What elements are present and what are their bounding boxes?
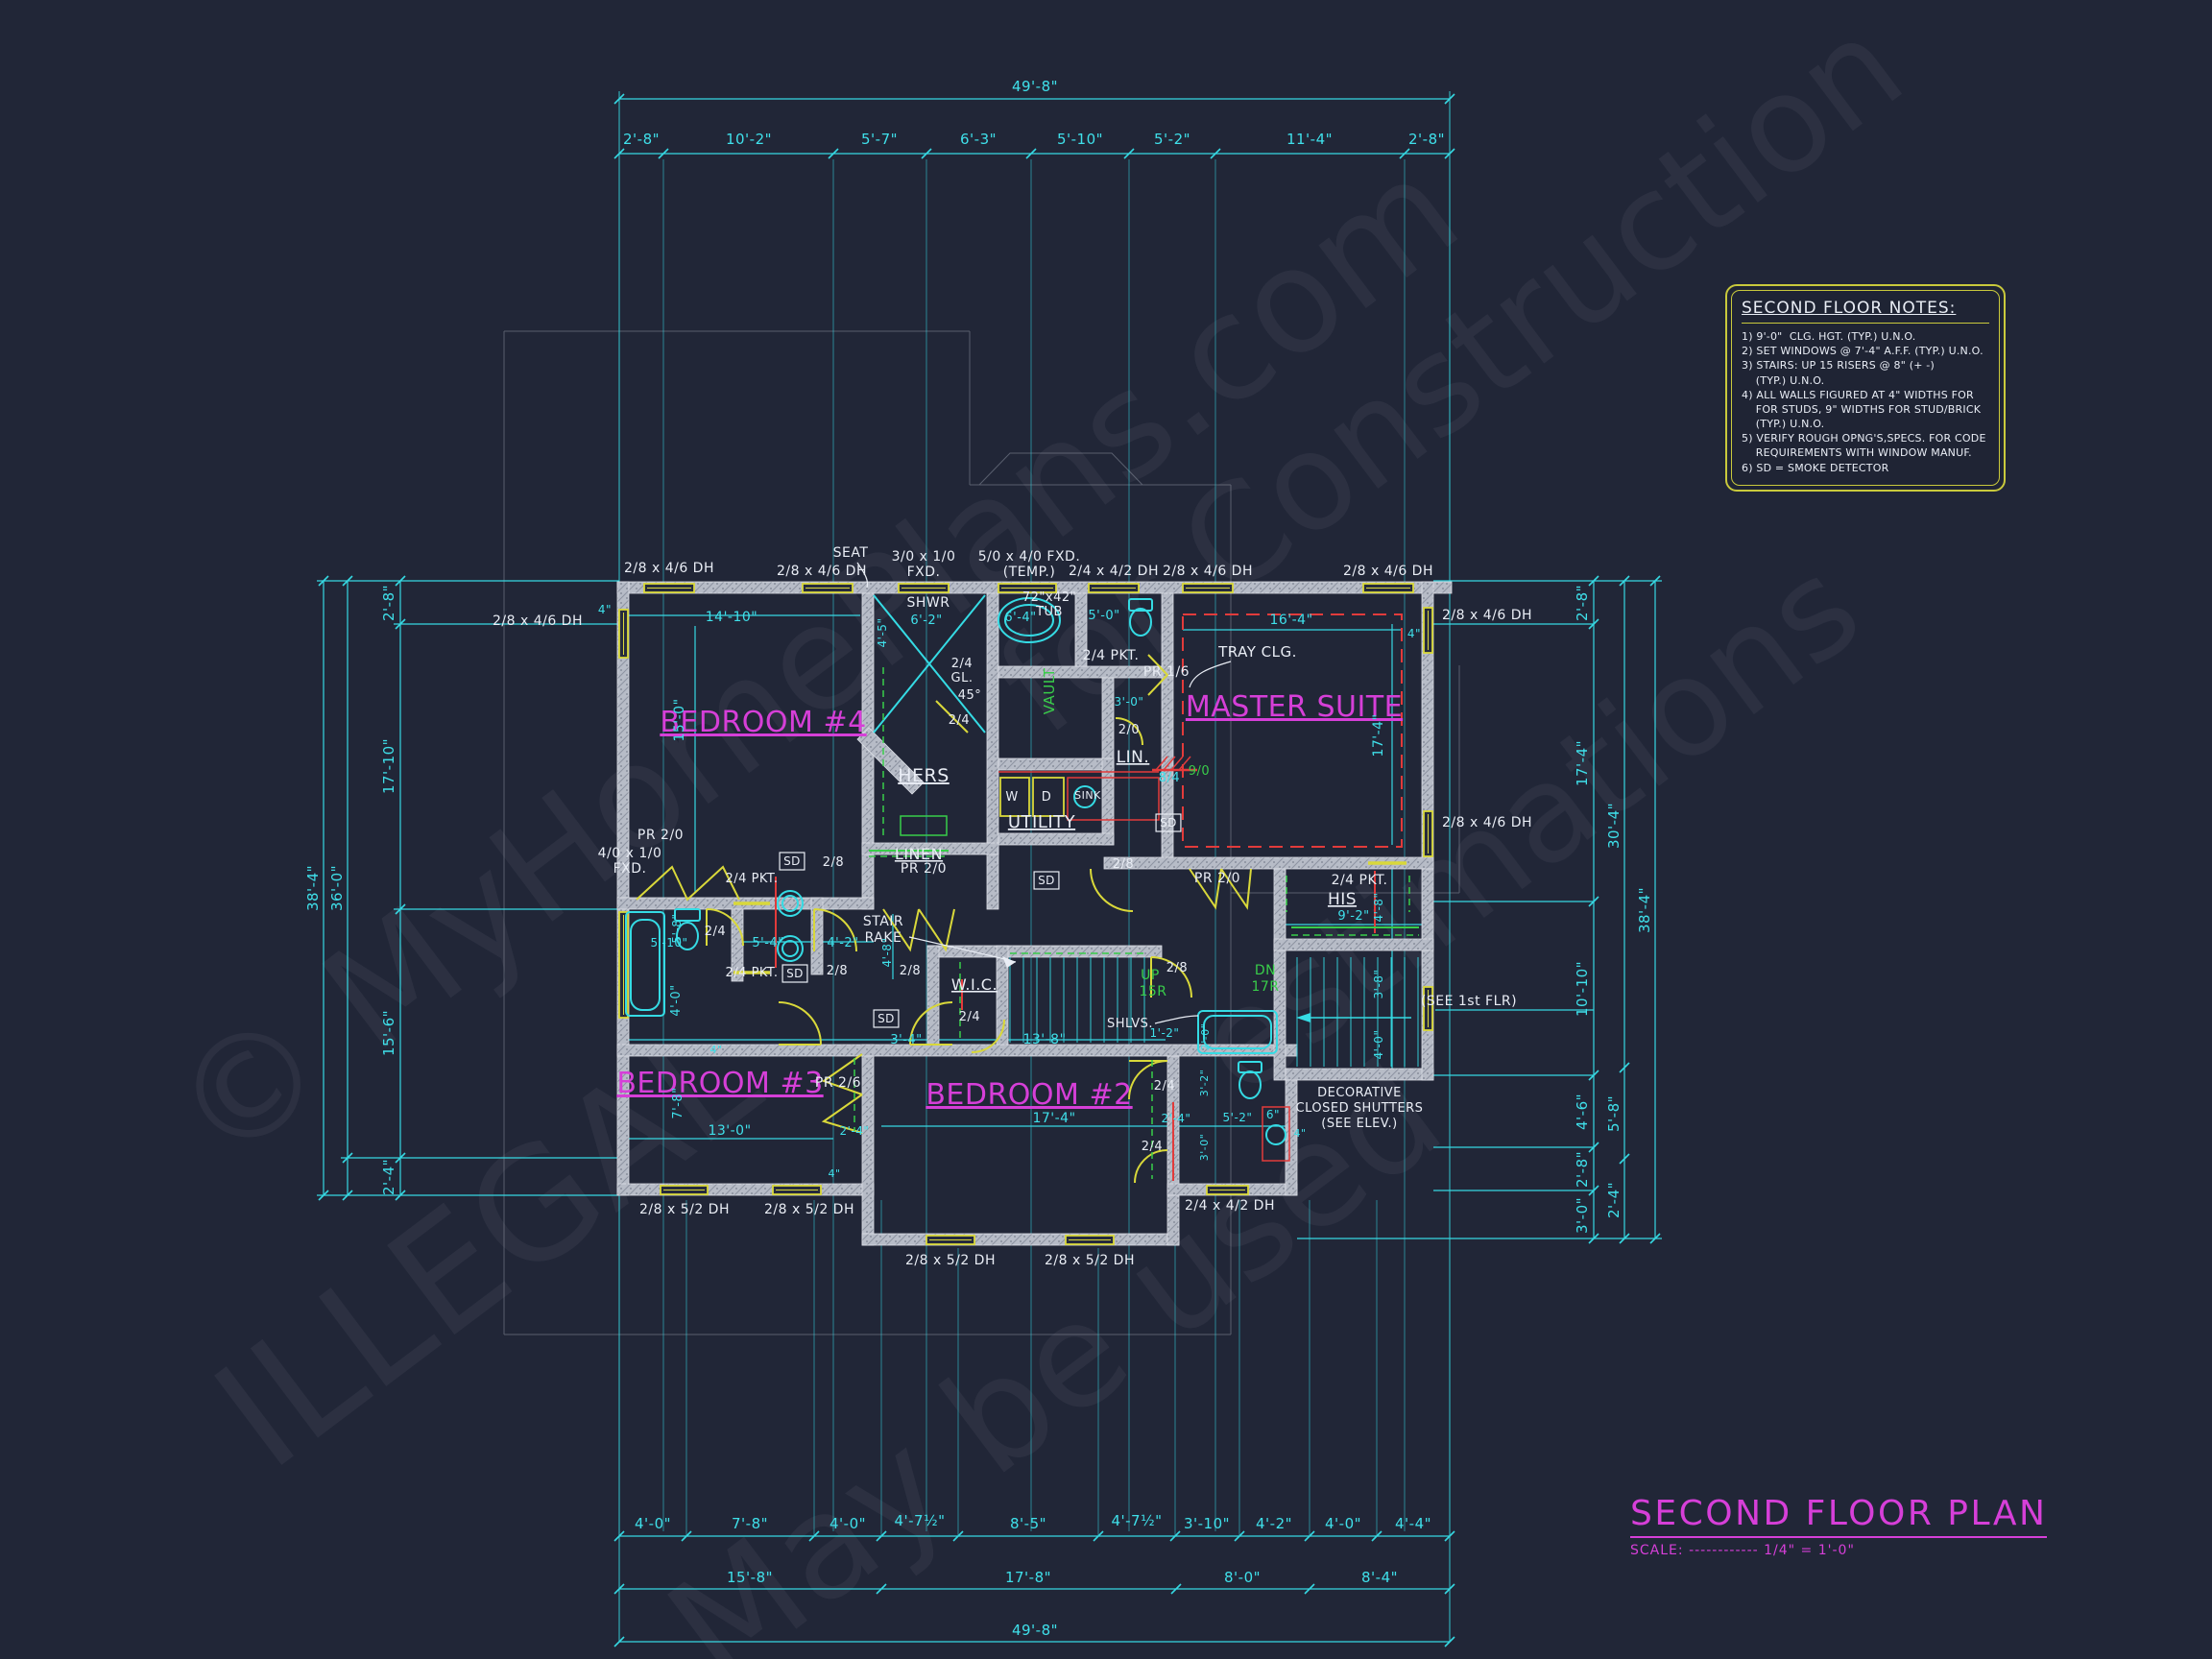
annotation-label: 2/8 x 4/6 DH bbox=[1442, 815, 1532, 830]
annotation-label: 4'-2" bbox=[1256, 1515, 1292, 1532]
annotation-label: 4'-0" bbox=[669, 984, 684, 1016]
annotation-label: 2/8 bbox=[827, 964, 848, 978]
annotation-label: SHWR bbox=[907, 595, 950, 611]
annotation-label: 5'-0" bbox=[1088, 609, 1119, 623]
annotation-label: 2'-8" bbox=[380, 585, 397, 621]
annotation-label: (SEE ELEV.) bbox=[1321, 1117, 1397, 1131]
annotation-label: SD bbox=[878, 1012, 895, 1025]
annotation-label: SHLVS. bbox=[1107, 1017, 1153, 1031]
annotation-label: 72"x42" bbox=[1022, 590, 1076, 605]
scale-label: SCALE: bbox=[1630, 1543, 1684, 1558]
annotation-label: SD bbox=[1160, 816, 1177, 829]
annotation-label: 2/8 x 4/6 DH bbox=[1163, 564, 1253, 579]
annotation-label: 2/4 PKT. bbox=[1083, 648, 1140, 663]
annotation-label: PR 2/0 bbox=[1194, 871, 1240, 886]
annotation-label: 3'-2" bbox=[1198, 1070, 1211, 1097]
annotation-label: 2/4 x 4/2 DH bbox=[1185, 1198, 1275, 1214]
annotation-label: 4'-0" bbox=[635, 1515, 671, 1532]
annotation-label: 2'-8" bbox=[1574, 585, 1591, 621]
annotation-label: 6'-4" bbox=[1004, 611, 1036, 625]
note-line: 3) STAIRS: UP 15 RISERS @ 8" (+ -) bbox=[1742, 358, 1989, 373]
annotation-label: 38'-4" bbox=[304, 865, 322, 911]
annotation-label: 15'-0" bbox=[672, 698, 687, 741]
annotation-label: 2'-8" bbox=[1574, 1151, 1591, 1188]
annotation-label: 11'-4" bbox=[1286, 131, 1333, 148]
annotation-label: 5/0 x 4/0 FXD. bbox=[978, 549, 1081, 565]
annotation-label: 8'-5" bbox=[1010, 1515, 1046, 1532]
annotation-label: VAULT bbox=[1041, 667, 1058, 714]
scale-value: 1/4" = 1'-0" bbox=[1764, 1543, 1855, 1558]
annotation-label: DECORATIVE bbox=[1317, 1086, 1402, 1100]
annotation-label: 2/4 bbox=[951, 657, 973, 671]
annotation-label: 5'-10" bbox=[650, 936, 687, 950]
annotation-label: 2/4 bbox=[949, 713, 970, 728]
annotation-label: 2/8 bbox=[823, 855, 844, 870]
annotation-label: 2/8 bbox=[1166, 961, 1188, 975]
note-line: REQUIREMENTS WITH WINDOW MANUF. bbox=[1742, 445, 1989, 460]
annotation-label: 4'-0" bbox=[1372, 1030, 1385, 1060]
annotation-label: 15'-8" bbox=[727, 1569, 773, 1586]
note-line: 1) 9'-0" CLG. HGT. (TYP.) U.N.O. bbox=[1742, 329, 1989, 344]
note-line: (TYP.) U.N.O. bbox=[1742, 373, 1989, 388]
annotation-label: 2/8 x 5/2 DH bbox=[1045, 1253, 1135, 1268]
annotation-label: 2/8 x 4/6 DH bbox=[1343, 564, 1433, 579]
annotation-label: 17'-10" bbox=[380, 738, 397, 794]
annotation-label: 3'-8" bbox=[1372, 970, 1385, 999]
annotation-label: LIN. bbox=[1117, 748, 1150, 767]
annotation-label: 49'-8" bbox=[1012, 1622, 1058, 1639]
annotation-label: 4'-8" bbox=[880, 938, 894, 968]
annotation-label: 13'-8" bbox=[1022, 1032, 1066, 1047]
annotation-label: 4'-7½" bbox=[1111, 1512, 1162, 1529]
note-line: 4) ALL WALLS FIGURED AT 4" WIDTHS FOR bbox=[1742, 388, 1989, 402]
annotation-label: TRAY CLG. bbox=[1217, 643, 1297, 661]
annotation-label: 9/0 bbox=[1189, 764, 1210, 779]
annotation-label: 2/8 x 5/2 DH bbox=[639, 1202, 730, 1217]
annotation-label: 8'-4" bbox=[1361, 1569, 1398, 1586]
annotation-label: SD bbox=[783, 854, 801, 868]
annotation-label: 6'-2" bbox=[910, 613, 942, 628]
annotation-label: 4'-2" bbox=[827, 936, 858, 950]
notes-title: SECOND FLOOR NOTES: bbox=[1742, 299, 1989, 324]
annotation-label: 4'-0" bbox=[1325, 1515, 1361, 1532]
annotation-label: 4" bbox=[1293, 1127, 1306, 1140]
annotation-label: 9'-2" bbox=[1337, 909, 1369, 924]
annotation-label: 3'-10" bbox=[1184, 1515, 1230, 1532]
annotation-label: 5'-2" bbox=[1223, 1111, 1253, 1124]
annotation-label: BEDROOM #3 bbox=[616, 1067, 823, 1100]
annotation-label: 13'-0" bbox=[708, 1123, 751, 1139]
annotation-label: BEDROOM #2 bbox=[926, 1078, 1132, 1112]
cad-floor-plan-screen: { "colors":{"cy":"#3fe0ea","wh":"#e9edf5… bbox=[0, 0, 2212, 1659]
annotation-label: 5'-7" bbox=[861, 131, 898, 148]
annotation-label: 17'-4" bbox=[1574, 740, 1591, 786]
note-line: FOR STUDS, 9" WIDTHS FOR STUD/BRICK bbox=[1742, 402, 1989, 417]
note-line: 6) SD = SMOKE DETECTOR bbox=[1742, 461, 1989, 475]
annotation-label: 2/4 PKT. bbox=[726, 966, 779, 980]
annotation-label: 4" bbox=[709, 1044, 722, 1056]
second-floor-notes-box: SECOND FLOOR NOTES: 1) 9'-0" CLG. HGT. (… bbox=[1725, 284, 2006, 492]
annotation-label: 14'-10" bbox=[706, 610, 757, 625]
note-line: 2) SET WINDOWS @ 7'-4" A.F.F. (TYP.) U.N… bbox=[1742, 344, 1989, 358]
annotation-label: PR 2/0 bbox=[901, 861, 947, 877]
annotation-label: 30'-4" bbox=[1605, 803, 1623, 849]
annotation-label: 15R bbox=[1139, 984, 1166, 999]
annotation-label: UP bbox=[1141, 968, 1160, 983]
annotation-label: HERS bbox=[898, 765, 950, 786]
annotation-label: 4'-0" bbox=[829, 1515, 866, 1532]
annotation-label: SINK bbox=[1074, 789, 1101, 802]
annotation-label: 17R bbox=[1251, 979, 1279, 995]
annotation-label: 2/4 bbox=[959, 1010, 980, 1024]
annotation-label: 4" bbox=[1407, 627, 1421, 640]
notes-list: 1) 9'-0" CLG. HGT. (TYP.) U.N.O.2) SET W… bbox=[1742, 329, 1989, 475]
annotation-label: 2/8 x 4/6 DH bbox=[777, 564, 867, 579]
annotation-label: 3'-4" bbox=[890, 1033, 922, 1047]
annotation-label: 4'-5" bbox=[876, 618, 889, 648]
annotation-label: 2'-8" bbox=[1408, 131, 1445, 148]
annotation-label: 2/8 bbox=[1113, 857, 1134, 872]
annotation-label: 17'-4" bbox=[1032, 1111, 1075, 1126]
annotation-label: 36'-0" bbox=[328, 865, 346, 911]
annotation-label: 3'-0" bbox=[1198, 1134, 1211, 1162]
annotation-label: 16'-4" bbox=[1269, 613, 1312, 628]
annotation-label: 49'-8" bbox=[1012, 78, 1058, 95]
annotation-label: SD bbox=[786, 967, 804, 980]
annotation-label: 4" bbox=[598, 603, 612, 616]
annotation-label: 5'-8" bbox=[1605, 1095, 1623, 1132]
scale-dashes: ------------ bbox=[1689, 1543, 1759, 1558]
annotation-label: 2/4 PKT. bbox=[726, 872, 779, 886]
annotation-label: 4'-4" bbox=[1395, 1515, 1431, 1532]
annotation-label: 15'-6" bbox=[380, 1010, 397, 1056]
annotation-label: 6'-3" bbox=[960, 131, 997, 148]
annotation-label: 10'-2" bbox=[726, 131, 772, 148]
annotation-label: 8/4 bbox=[1159, 771, 1180, 785]
annotation-label: 2/8 x 4/6 DH bbox=[624, 561, 714, 576]
annotation-label: 2/8 x 5/2 DH bbox=[764, 1202, 854, 1217]
annotation-label: 2/4 bbox=[705, 925, 726, 939]
annotation-label: 17'-8" bbox=[1005, 1569, 1051, 1586]
annotation-label: PR 2/0 bbox=[637, 828, 684, 843]
annotation-label: 2/4 x 4/2 DH bbox=[1069, 564, 1159, 579]
annotation-label: 3/0 x 1/0 bbox=[892, 549, 956, 565]
annotation-label: 38'-4" bbox=[1636, 887, 1653, 933]
annotation-label: 2/8 bbox=[900, 964, 921, 978]
annotation-label: 2/8 x 4/6 DH bbox=[493, 613, 583, 629]
annotation-label: 4/0 x 1/0 bbox=[598, 846, 662, 861]
annotation-label: 2'-4" bbox=[1162, 1112, 1191, 1125]
annotation-label: (TEMP.) bbox=[1003, 565, 1056, 580]
annotation-label: W bbox=[1005, 790, 1018, 805]
annotation-label: BEDROOM #4 bbox=[660, 706, 866, 739]
annotation-label: 7'-8" bbox=[671, 1087, 685, 1118]
annotation-label: 45° bbox=[958, 688, 982, 703]
annotation-label: SD bbox=[1038, 874, 1055, 887]
annotation-label: D bbox=[1042, 790, 1052, 805]
annotation-label: 2'-4" bbox=[840, 1124, 870, 1138]
annotation-label: PR 2/6 bbox=[815, 1075, 861, 1091]
annotation-label: DN bbox=[1255, 963, 1276, 978]
drawing-scale: SCALE: ------------ 1/4" = 1'-0" bbox=[1630, 1543, 2047, 1558]
notes-inner-border: SECOND FLOOR NOTES: 1) 9'-0" CLG. HGT. (… bbox=[1731, 290, 2000, 486]
annotation-label: 2/4 bbox=[1142, 1140, 1163, 1154]
annotation-label: GL. bbox=[951, 671, 974, 685]
annotation-label: 5'-10" bbox=[1057, 131, 1103, 148]
annotation-label: 6" bbox=[1266, 1108, 1280, 1121]
annotation-label: 2/0 bbox=[1118, 723, 1140, 737]
annotation-label: 2/8 x 5/2 DH bbox=[905, 1253, 996, 1268]
annotation-label: 2'-8" bbox=[623, 131, 660, 148]
note-line: (TYP.) U.N.O. bbox=[1742, 417, 1989, 431]
annotation-label: 8'-0" bbox=[1224, 1569, 1261, 1586]
annotation-label: 5'-2" bbox=[1154, 131, 1190, 148]
annotation-label: CLOSED SHUTTERS bbox=[1296, 1101, 1424, 1116]
annotation-label: (SEE 1st FLR) bbox=[1421, 994, 1517, 1009]
annotation-label: 2'-0" bbox=[1199, 1023, 1212, 1051]
annotation-label: 10'-10" bbox=[1574, 961, 1591, 1017]
annotation-label: PR 1/6 bbox=[1143, 664, 1190, 680]
annotation-label: 2/8 x 4/6 DH bbox=[1442, 608, 1532, 623]
annotation-label: 3'-0" bbox=[1115, 695, 1144, 709]
annotation-label: 2/4 PKT. bbox=[1332, 873, 1388, 888]
annotation-label: SEAT bbox=[833, 545, 869, 561]
title-block: SECOND FLOOR PLAN SCALE: ------------ 1/… bbox=[1630, 1494, 2047, 1558]
annotation-label: UTILITY bbox=[1008, 812, 1076, 832]
annotation-label: 4'-8" bbox=[1372, 893, 1385, 923]
annotation-label: STAIR bbox=[863, 914, 903, 929]
annotation-label: HIS bbox=[1328, 890, 1357, 909]
floor-plan-drawing: © MyHomePlans.comILLEGALMay be usedfor C… bbox=[0, 0, 2212, 1659]
annotation-label: 3'-0" bbox=[1574, 1197, 1591, 1234]
annotation-label: TUB bbox=[1035, 605, 1063, 619]
annotation-label: 2/4 bbox=[1154, 1079, 1175, 1094]
annotation-label: 2'-4" bbox=[1605, 1182, 1623, 1218]
note-line: 5) VERIFY ROUGH OPNG'S,SPECS. FOR CODE bbox=[1742, 431, 1989, 445]
annotation-label: 4" bbox=[828, 1167, 840, 1180]
annotation-label: 17'-4" bbox=[1371, 713, 1386, 757]
annotation-label: FXD. bbox=[907, 565, 941, 580]
annotation-label: 1'-2" bbox=[1150, 1026, 1180, 1040]
annotation-label: 5'-4" bbox=[752, 936, 783, 950]
annotation-label: FXD. bbox=[613, 861, 647, 877]
annotation-label: W.I.C. bbox=[951, 975, 998, 994]
annotation-label: 2'-4" bbox=[380, 1159, 397, 1195]
drawing-title: SECOND FLOOR PLAN bbox=[1630, 1494, 2047, 1538]
annotation-label: 7'-8" bbox=[732, 1515, 768, 1532]
annotation-label: 4'-7½" bbox=[894, 1512, 945, 1529]
annotation-label: 4'-6" bbox=[1574, 1094, 1591, 1130]
